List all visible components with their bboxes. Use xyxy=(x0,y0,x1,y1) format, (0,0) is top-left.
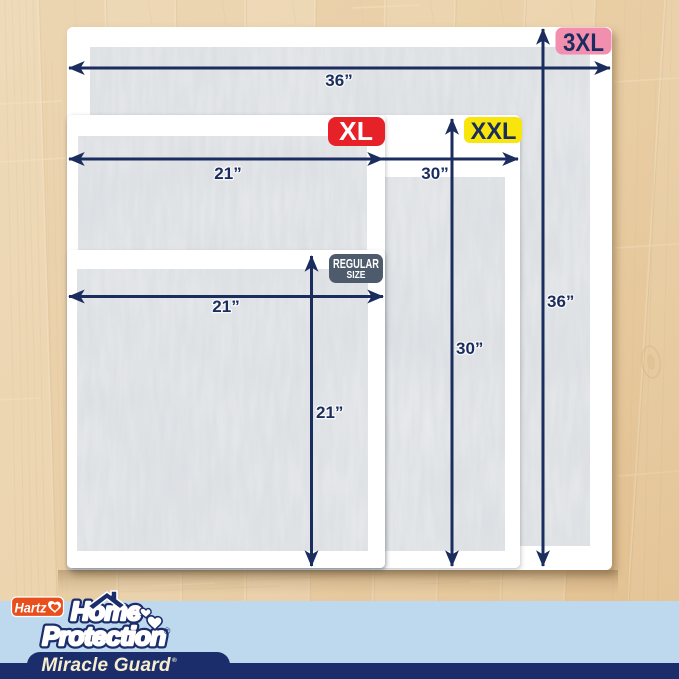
svg-text:30”: 30” xyxy=(421,164,448,183)
svg-text:SIZE: SIZE xyxy=(347,270,366,281)
svg-text:®: ® xyxy=(164,626,171,636)
svg-text:30”: 30” xyxy=(456,339,483,358)
svg-text:Hartz: Hartz xyxy=(15,600,47,616)
svg-text:XXL: XXL xyxy=(471,118,517,145)
svg-text:®: ® xyxy=(172,656,177,664)
svg-text:36”: 36” xyxy=(325,71,352,90)
svg-text:21”: 21” xyxy=(316,403,343,422)
svg-text:21”: 21” xyxy=(214,164,241,183)
svg-text:XL: XL xyxy=(339,116,373,146)
svg-text:36”: 36” xyxy=(547,292,574,311)
svg-text:Protection: Protection xyxy=(42,621,166,651)
svg-text:REGULAR: REGULAR xyxy=(333,257,379,271)
svg-text:3XL: 3XL xyxy=(563,29,604,57)
svg-text:Miracle Guard: Miracle Guard xyxy=(41,655,171,676)
svg-text:21”: 21” xyxy=(212,297,239,316)
